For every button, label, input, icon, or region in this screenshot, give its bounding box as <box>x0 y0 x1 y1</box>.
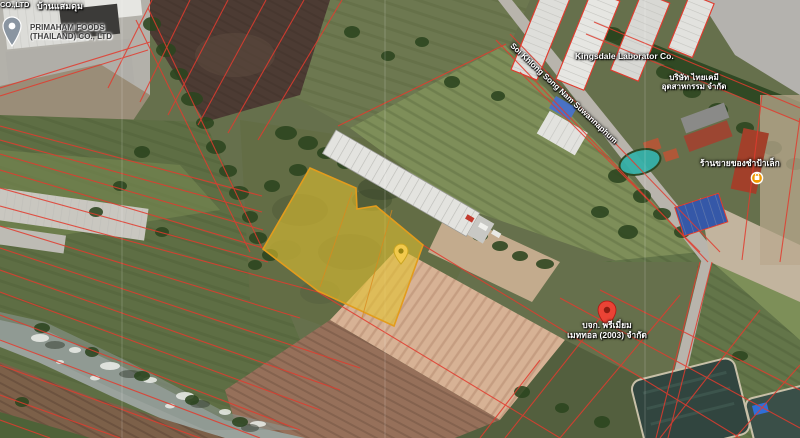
gray-business-pin-icon[interactable] <box>2 16 22 48</box>
right-company-label[interactable]: บริษัท ไทยเคมี อุตสาหกรรม จำกัด <box>648 74 740 92</box>
factory-label[interactable]: PRIMAHAM FOODS (THAILAND) CO., LTD <box>30 24 112 42</box>
shop-label[interactable]: ร้านขายของชำป้าเล็ก <box>700 159 780 169</box>
satellite-imagery <box>0 0 800 438</box>
kingsdale-company-label[interactable]: Kingsdale Laborator Co. <box>575 52 674 62</box>
shopping-poi-dot-icon[interactable] <box>750 171 764 185</box>
right-company-line2: อุตสาหกรรม จำกัด <box>648 83 740 92</box>
village-label[interactable]: บ้านแสมดุม <box>37 1 83 11</box>
red-pin-label-line2: เมททอล (2003) จำกัด <box>548 331 666 341</box>
red-pin-label[interactable]: บจก. พรีเมี่ยม เมททอล (2003) จำกัด <box>548 321 666 340</box>
factory-label-line2: (THAILAND) CO., LTD <box>30 33 112 42</box>
yellow-parcel-pin-icon[interactable] <box>393 243 409 265</box>
satellite-map-viewport[interactable]: CO.,LTD บ้านแสมดุม PRIMAHAM FOODS (THAIL… <box>0 0 800 438</box>
corner-company-label: CO.,LTD <box>0 1 29 9</box>
